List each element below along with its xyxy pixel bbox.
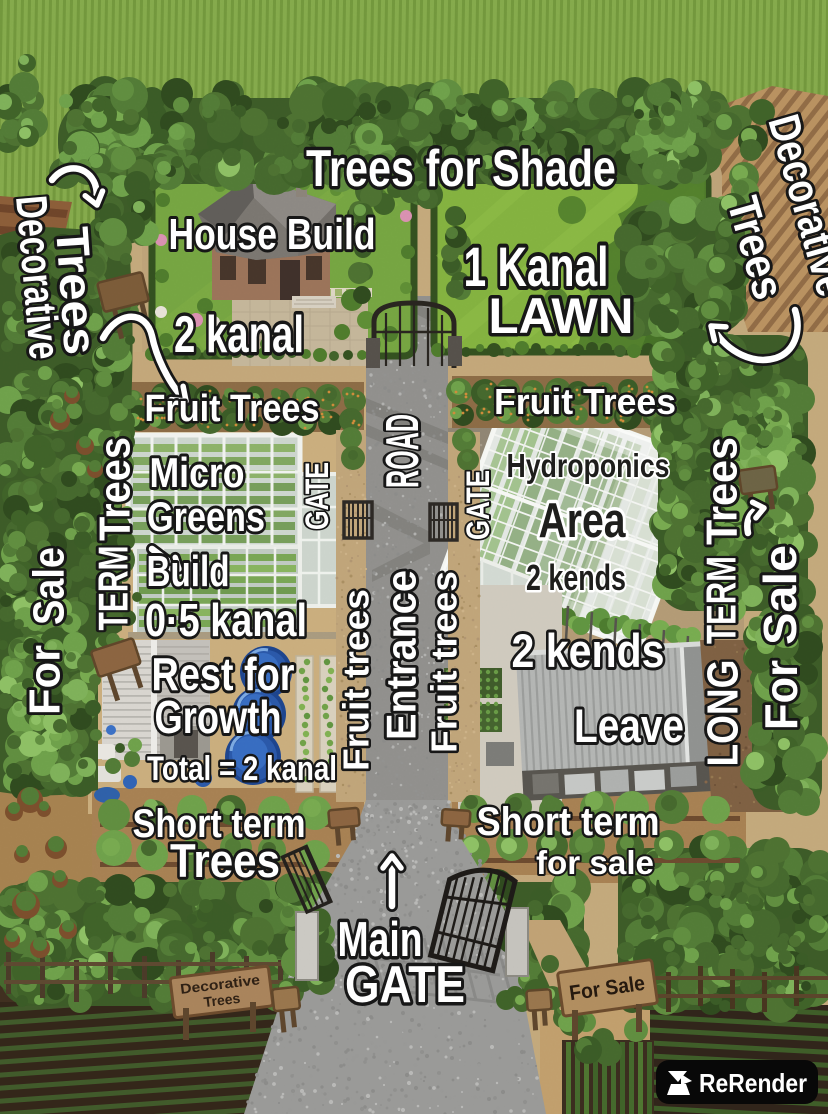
svg-text:ReRender: ReRender <box>699 1068 807 1098</box>
